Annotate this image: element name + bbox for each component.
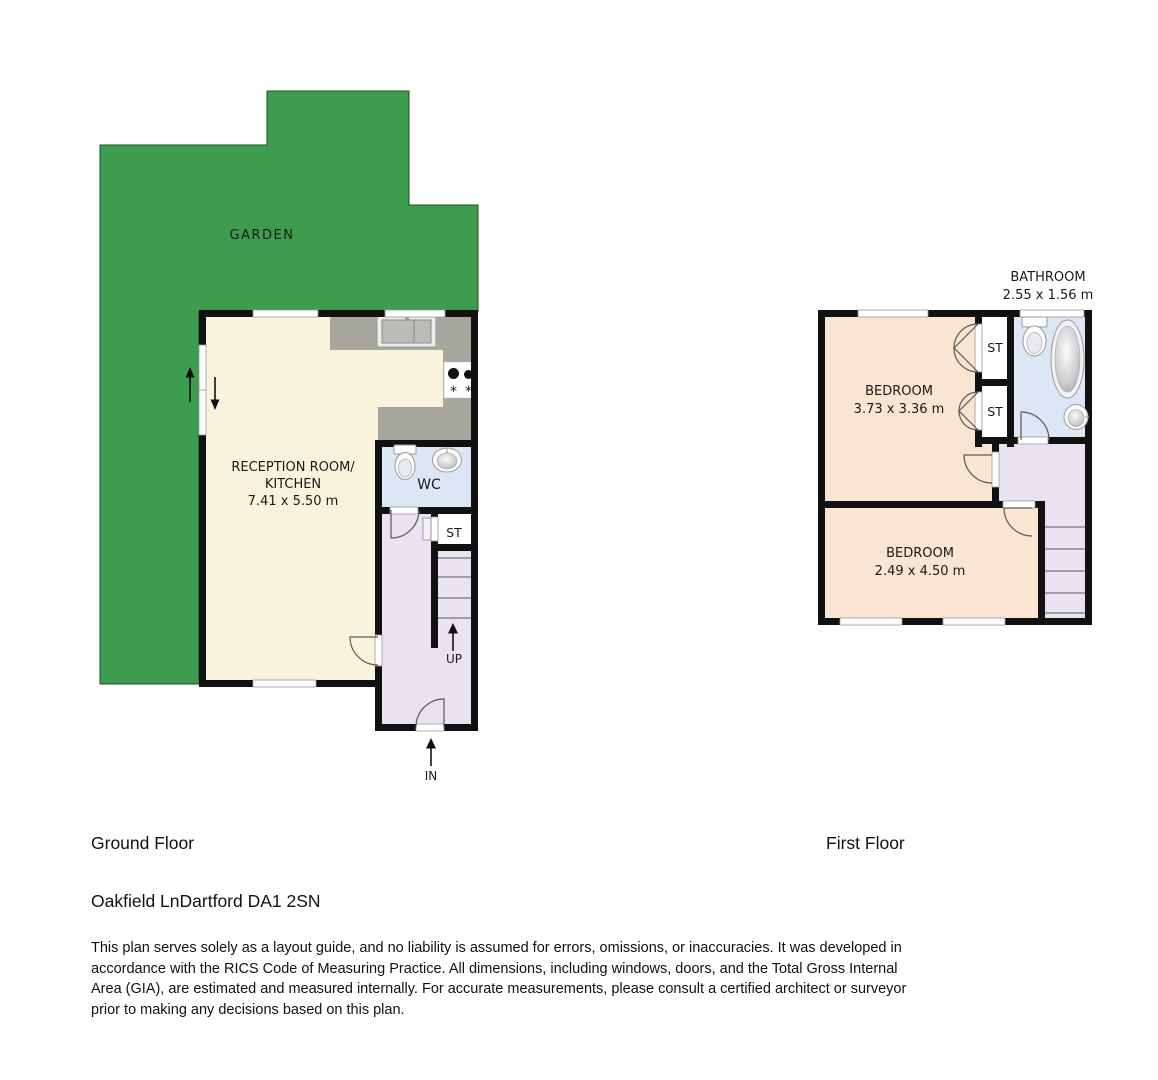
bathroom-dims: 2.55 x 1.56 m	[1003, 288, 1094, 303]
door-gap	[1003, 501, 1035, 508]
reception-label-line2: KITCHEN	[265, 477, 321, 492]
window	[385, 310, 445, 317]
first-floor-plan: BATHROOM 2.55 x 1.56 m BEDROOM 3.73 x 3.…	[818, 270, 1093, 625]
st1-label: ST	[987, 340, 1003, 355]
svg-text:*: *	[465, 384, 472, 400]
disclaimer-text: This plan serves solely as a layout guid…	[91, 938, 923, 1020]
st2-label: ST	[987, 404, 1003, 419]
wc-toilet-icon	[394, 445, 416, 480]
bathroom-toilet-icon	[1022, 317, 1047, 356]
door-gap	[431, 517, 438, 541]
entrance-door-gap	[416, 724, 444, 731]
in-arrow	[426, 738, 436, 766]
floorplan-canvas: GARDEN * *	[0, 0, 1158, 1080]
svg-text:*: *	[450, 384, 457, 400]
kitchen-sink-icon	[377, 316, 436, 347]
reception-dims: 7.41 x 5.50 m	[248, 494, 339, 509]
bedroom1-dims: 3.73 x 3.36 m	[854, 402, 945, 417]
door-gap	[375, 635, 382, 666]
wc-sink-icon	[433, 448, 462, 472]
wc-label: WC	[417, 477, 441, 493]
garden-label: GARDEN	[230, 228, 295, 243]
bathroom-label: BATHROOM	[1010, 270, 1085, 285]
door-gap	[992, 452, 999, 487]
st-door-leaf	[423, 518, 431, 540]
door-gap	[390, 507, 418, 514]
window	[858, 310, 928, 317]
bedroom2-dims: 2.49 x 4.50 m	[875, 564, 966, 579]
first-floor-caption: First Floor	[826, 833, 905, 854]
bathtub-icon	[1051, 320, 1084, 398]
window	[253, 680, 316, 687]
in-label: IN	[425, 769, 438, 783]
closet-door-gap	[975, 324, 982, 372]
bedroom1-label: BEDROOM	[865, 384, 933, 399]
reception-label-line1: RECEPTION ROOM/	[231, 460, 355, 475]
ground-floor-caption: Ground Floor	[91, 833, 194, 854]
window	[840, 618, 902, 625]
property-address: Oakfield LnDartford DA1 2SN	[91, 891, 321, 912]
first-floor-stairwell	[1042, 505, 1089, 622]
closet-door-gap	[975, 392, 982, 430]
hob-icon: * *	[444, 362, 475, 400]
landing	[995, 440, 1089, 508]
ground-floor-plan: GARDEN * *	[100, 91, 478, 783]
st-label: ST	[446, 525, 462, 540]
door-gap	[1018, 437, 1048, 444]
up-label: UP	[446, 652, 462, 666]
window	[253, 310, 318, 317]
floorplan-page: GARDEN * *	[0, 0, 1158, 1080]
bedroom2-label: BEDROOM	[886, 546, 954, 561]
window	[1020, 310, 1084, 317]
window	[943, 618, 1005, 625]
